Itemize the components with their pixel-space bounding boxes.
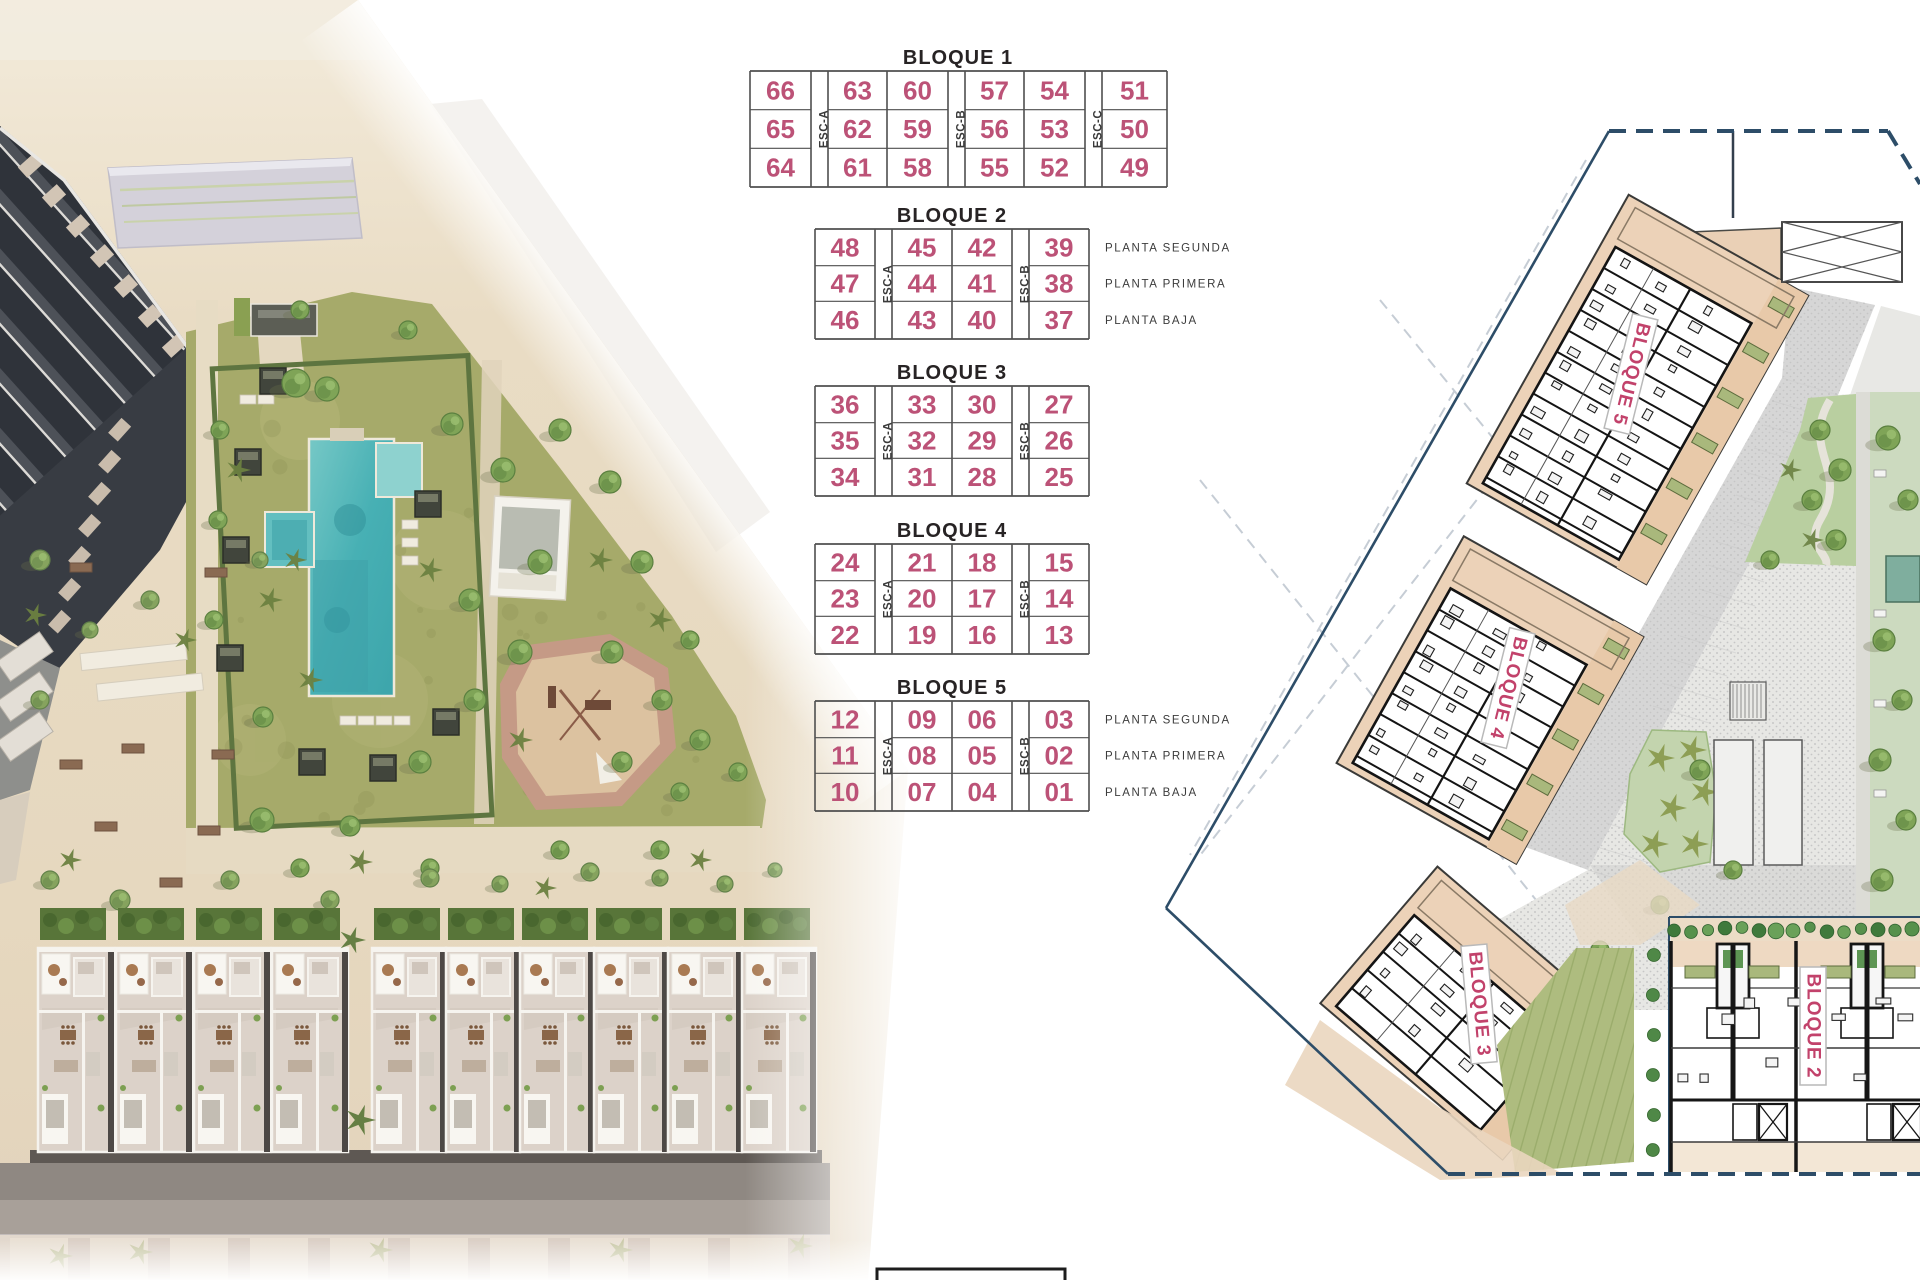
- svg-text:51: 51: [1120, 75, 1149, 105]
- svg-text:24: 24: [831, 547, 860, 577]
- svg-text:12: 12: [831, 704, 860, 734]
- svg-text:ESC-A: ESC-A: [883, 580, 895, 618]
- svg-text:PLANTA BAJA: PLANTA BAJA: [1105, 787, 1198, 799]
- svg-text:46: 46: [831, 305, 860, 335]
- svg-text:52: 52: [1040, 153, 1069, 183]
- svg-text:15: 15: [1045, 547, 1074, 577]
- svg-text:39: 39: [1045, 232, 1074, 262]
- svg-text:47: 47: [831, 269, 860, 299]
- svg-text:02: 02: [1045, 741, 1074, 771]
- svg-text:66: 66: [766, 75, 795, 105]
- svg-text:32: 32: [908, 426, 937, 456]
- svg-text:04: 04: [968, 777, 997, 807]
- svg-text:ESC-A: ESC-A: [819, 110, 831, 148]
- svg-text:08: 08: [908, 741, 937, 771]
- svg-text:22: 22: [831, 620, 860, 650]
- svg-text:50: 50: [1120, 114, 1149, 144]
- svg-text:35: 35: [831, 426, 860, 456]
- svg-text:ESC-B: ESC-B: [1020, 580, 1032, 618]
- svg-text:26: 26: [1045, 426, 1074, 456]
- svg-text:21: 21: [908, 547, 937, 577]
- svg-text:65: 65: [766, 114, 795, 144]
- svg-text:11: 11: [831, 741, 859, 771]
- svg-text:40: 40: [968, 305, 997, 335]
- svg-text:20: 20: [908, 584, 937, 614]
- svg-text:19: 19: [908, 620, 937, 650]
- svg-text:10: 10: [831, 777, 860, 807]
- svg-text:PLANTA SEGUNDA: PLANTA SEGUNDA: [1105, 714, 1231, 726]
- svg-text:06: 06: [968, 704, 997, 734]
- svg-text:05: 05: [968, 741, 997, 771]
- svg-text:33: 33: [908, 389, 937, 419]
- svg-text:ESC-B: ESC-B: [956, 110, 968, 148]
- svg-text:42: 42: [968, 232, 997, 262]
- svg-text:BLOQUE 4: BLOQUE 4: [897, 520, 1007, 542]
- svg-text:62: 62: [843, 114, 872, 144]
- svg-text:ESC-A: ESC-A: [883, 422, 895, 460]
- svg-text:ESC-C: ESC-C: [1093, 110, 1105, 148]
- svg-text:03: 03: [1045, 704, 1074, 734]
- svg-text:13: 13: [1045, 620, 1074, 650]
- svg-text:BLOQUE 5: BLOQUE 5: [897, 677, 1007, 699]
- svg-text:28: 28: [968, 462, 997, 492]
- svg-text:PLANTA PRIMERA: PLANTA PRIMERA: [1105, 751, 1226, 763]
- svg-text:61: 61: [843, 153, 872, 183]
- svg-text:55: 55: [980, 153, 1009, 183]
- svg-text:54: 54: [1040, 75, 1069, 105]
- svg-text:53: 53: [1040, 114, 1069, 144]
- svg-text:09: 09: [908, 704, 937, 734]
- svg-text:31: 31: [908, 462, 937, 492]
- svg-text:60: 60: [903, 75, 932, 105]
- svg-text:36: 36: [831, 389, 860, 419]
- svg-text:58: 58: [903, 153, 932, 183]
- svg-text:ESC-B: ESC-B: [1020, 265, 1032, 303]
- svg-text:29: 29: [968, 426, 997, 456]
- svg-text:56: 56: [980, 114, 1009, 144]
- svg-text:64: 64: [766, 153, 795, 183]
- svg-text:ESC-B: ESC-B: [1020, 737, 1032, 775]
- svg-text:18: 18: [968, 547, 997, 577]
- svg-text:17: 17: [968, 584, 997, 614]
- svg-text:ESC-B: ESC-B: [1020, 422, 1032, 460]
- svg-text:ESC-A: ESC-A: [883, 265, 895, 303]
- svg-text:PLANTA PRIMERA: PLANTA PRIMERA: [1105, 279, 1226, 291]
- svg-text:BLOQUE 3: BLOQUE 3: [897, 362, 1007, 384]
- svg-text:57: 57: [980, 75, 1009, 105]
- svg-text:BLOQUE 2: BLOQUE 2: [1803, 973, 1824, 1078]
- svg-text:01: 01: [1045, 777, 1074, 807]
- svg-text:34: 34: [831, 462, 860, 492]
- svg-text:BLOQUE 2: BLOQUE 2: [897, 205, 1007, 227]
- svg-text:25: 25: [1045, 462, 1074, 492]
- svg-text:PLANTA BAJA: PLANTA BAJA: [1105, 315, 1198, 327]
- svg-text:59: 59: [903, 114, 932, 144]
- svg-text:43: 43: [908, 305, 937, 335]
- svg-text:41: 41: [968, 269, 997, 299]
- svg-text:48: 48: [831, 232, 860, 262]
- svg-text:23: 23: [831, 584, 860, 614]
- svg-text:49: 49: [1120, 153, 1149, 183]
- svg-text:63: 63: [843, 75, 872, 105]
- svg-text:BLOQUE 1: BLOQUE 1: [903, 47, 1013, 69]
- svg-text:45: 45: [908, 232, 937, 262]
- svg-text:30: 30: [968, 389, 997, 419]
- svg-text:16: 16: [968, 620, 997, 650]
- svg-text:44: 44: [908, 269, 937, 299]
- svg-text:14: 14: [1045, 584, 1074, 614]
- svg-text:37: 37: [1045, 305, 1074, 335]
- svg-text:27: 27: [1045, 389, 1074, 419]
- svg-text:07: 07: [908, 777, 937, 807]
- svg-text:PLANTA SEGUNDA: PLANTA SEGUNDA: [1105, 242, 1231, 254]
- svg-text:38: 38: [1045, 269, 1074, 299]
- svg-text:ESC-A: ESC-A: [883, 737, 895, 775]
